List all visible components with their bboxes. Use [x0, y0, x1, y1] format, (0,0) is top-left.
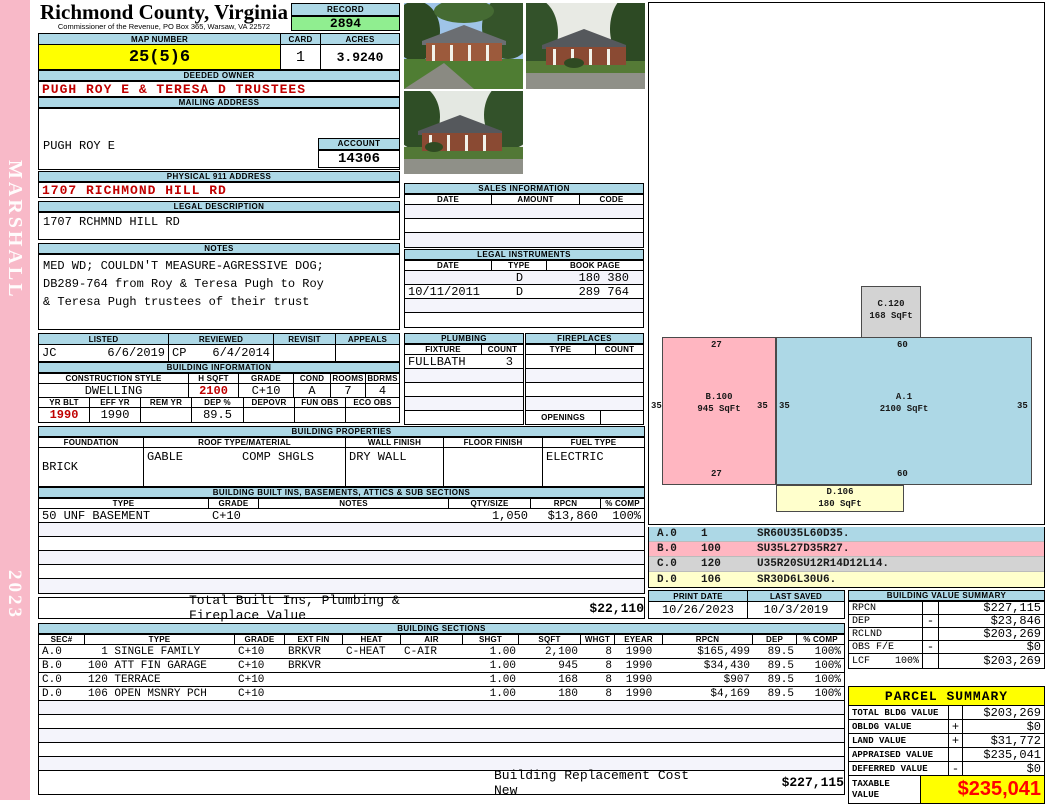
sec-dep: 89.5: [753, 645, 797, 658]
property-record-card: { "sidebar": { "vendor": "MARSHALL", "ye…: [0, 0, 1050, 800]
sec-eyear: 1990: [615, 687, 663, 700]
replacement-cost-row: Building Replacement Cost New $227,115: [39, 771, 844, 794]
legend-row-c: C.0 120 U35R20SU12R14D12L14.: [649, 557, 1044, 572]
sec-comp: 100%: [797, 645, 844, 658]
legal-description-value: 1707 RCHMND HILL RD: [38, 212, 400, 240]
depovr-header: DEPOVR: [244, 398, 295, 407]
building-information-label: BUILDING INFORMATION: [38, 362, 400, 373]
plumbing-label: PLUMBING: [404, 333, 524, 344]
sec-heat-header: HEAT: [343, 635, 401, 644]
builtin-notes-header: NOTES: [259, 499, 449, 508]
notes-line-2: DB289-764 from Roy & Teresa Pugh to Roy: [43, 275, 399, 293]
builtin-notes: [259, 509, 449, 522]
sec-grade: C+10: [235, 645, 285, 658]
empty-row: [405, 313, 643, 327]
account-label: ACCOUNT: [318, 138, 400, 150]
floor-finish-header: FLOOR FINISH: [444, 438, 543, 447]
sec-extfin-header: EXT FIN: [285, 635, 343, 644]
sec-whgt: 8: [581, 659, 615, 672]
openings-value: [601, 411, 643, 424]
foundation-value: BRICK: [39, 448, 144, 486]
yrblt-value: 1990: [39, 408, 90, 422]
builtin-type: 50 UNF BASEMENT: [39, 509, 209, 522]
sec-grade: C+10: [235, 673, 285, 686]
instrument-row: 10/11/2011 D 289 764: [405, 285, 643, 299]
taxable-value-label: TAXABLE VALUE: [849, 776, 921, 803]
account-value: 14306: [318, 150, 400, 168]
bvs-lcf-label: LCF: [852, 656, 870, 667]
sec-sqft-header: SQFT: [519, 635, 581, 644]
legend-b-vector: SU35L27D35R27.: [757, 543, 849, 555]
legend-d-qty: 106: [701, 574, 757, 586]
sketch-c-id: C.120: [856, 298, 926, 310]
building-section-row: C.0 120 TERRACE C+10 1.00 168 8 1990 $90…: [39, 673, 844, 687]
plumbing-table: FIXTURE COUNT FULLBATH 3: [404, 344, 524, 425]
building-sections-label: BUILDING SECTIONS: [38, 623, 845, 634]
property-photo-1[interactable]: [404, 3, 523, 89]
empty-row: [39, 757, 844, 771]
empty-row: [39, 565, 644, 579]
openings-label: OPENINGS: [526, 411, 601, 424]
revisit-header: REVISIT: [274, 334, 336, 344]
ecoobs-value: [346, 408, 399, 422]
bvs-rclnd-value: $203,269: [939, 628, 1044, 640]
bvs-rpcn-value: $227,115: [939, 602, 1044, 614]
sec-air-header: AIR: [401, 635, 463, 644]
sec-id: B.0: [39, 659, 85, 672]
fireplaces-table: TYPE COUNT OPENINGS: [525, 344, 644, 425]
empty-row: [39, 715, 844, 729]
legend-row-a: A.0 1 SR60U35L60D35.: [649, 527, 1044, 542]
building-section-row: B.0 100 ATT FIN GARAGE C+10 BRKVR 1.00 9…: [39, 659, 844, 673]
dim-a-bottom: 60: [897, 469, 908, 479]
building-sections-table: SEC# TYPE GRADE EXT FIN HEAT AIR SHGT SQ…: [38, 634, 845, 795]
bvs-lcf-value: $203,269: [939, 654, 1044, 668]
builtin-comp-header: % COMP: [601, 499, 644, 508]
sales-table: DATE AMOUNT CODE: [404, 194, 644, 248]
wall-finish-value: DRY WALL: [346, 448, 444, 486]
bvs-obs-sign: -: [923, 641, 939, 653]
instrument-date-header: DATE: [405, 261, 492, 270]
empty-row: [39, 729, 844, 743]
deferred-value: $0: [963, 762, 1044, 775]
appraised-value: $235,041: [963, 748, 1044, 761]
sec-whgt: 8: [581, 673, 615, 686]
bdrms-header: BDRMS: [366, 374, 399, 383]
dim-a-top: 60: [897, 340, 908, 350]
print-date-label: PRINT DATE: [649, 591, 748, 601]
remyr-value: [141, 408, 192, 422]
reviewed-header: REVIEWED: [169, 334, 274, 344]
sec-type: 106 OPEN MSNRY PCH: [85, 687, 235, 700]
acres-value: 3.9240: [321, 45, 399, 69]
card-value: 1: [281, 45, 321, 69]
map-number-value: 25(5)6: [39, 45, 281, 69]
bvs-obs-label: OBS F/E: [849, 641, 923, 653]
map-number-label: MAP NUMBER: [39, 34, 281, 44]
building-section-row: D.0 106 OPEN MSNRY PCH C+10 1.00 180 8 1…: [39, 687, 844, 701]
legend-c-vector: U35R20SU12R14D12L14.: [757, 558, 889, 570]
property-photo-2[interactable]: [526, 3, 645, 89]
bvs-rpcn-sign: [923, 602, 939, 614]
sec-rpcn: $907: [663, 673, 753, 686]
sec-extfin: BRKVR: [285, 659, 343, 672]
legend-d-vector: SR30D6L30U6.: [757, 574, 836, 586]
bvs-lcf-pct: 100%: [895, 656, 919, 667]
vendor-watermark: MARSHALL: [3, 160, 26, 300]
record-label: RECORD: [291, 3, 400, 16]
reviewed-date: 6/4/2014: [212, 346, 270, 360]
legal-description-label: LEGAL DESCRIPTION: [38, 201, 400, 212]
listed-date: 6/6/2019: [107, 346, 165, 360]
legend-row-d: D.0 106 SR30D6L30U6.: [649, 572, 1044, 587]
appraised-label: APPRAISED VALUE: [849, 748, 949, 761]
legal-instruments-label: LEGAL INSTRUMENTS: [404, 249, 644, 260]
land-value: $31,772: [963, 734, 1044, 747]
appeals-header: APPEALS: [336, 334, 399, 344]
record-value: 2894: [291, 16, 400, 31]
empty-row: [405, 369, 523, 383]
print-saved-table: PRINT DATE LAST SAVED 10/26/2023 10/3/20…: [648, 590, 845, 619]
yrblt-header: YR BLT: [39, 398, 90, 407]
total-bldg-label: TOTAL BLDG VALUE: [849, 706, 949, 719]
fixture-value: FULLBATH: [405, 355, 482, 368]
sec-heat: [343, 659, 401, 672]
built-ins-total-label: Total Built Ins, Plumbing & Fireplace Va…: [189, 593, 419, 623]
instrument-row: D 180 380: [405, 271, 643, 285]
notes-line-1: MED WD; COULDN'T MEASURE-AGRESSIVE DOG;: [43, 257, 399, 275]
building-properties-table: FOUNDATION ROOF TYPE/MATERIAL WALL FINIS…: [38, 437, 645, 487]
obldg-value: $0: [963, 720, 1044, 733]
sec-id: D.0: [39, 687, 85, 700]
depovr-value: [244, 408, 295, 422]
parcel-summary-title: PARCEL SUMMARY: [849, 687, 1044, 706]
sidebar-band: MARSHALL 2023: [0, 0, 30, 800]
replacement-cost-label: Building Replacement Cost New: [494, 768, 717, 798]
instrument-bookpage-header: BOOK PAGE: [547, 261, 643, 270]
builtin-comp: 100%: [601, 509, 644, 522]
sec-dep-header: DEP: [753, 635, 797, 644]
dim-b-right: 35: [757, 401, 768, 411]
review-table: LISTED REVIEWED REVISIT APPEALS JC6/6/20…: [38, 333, 400, 362]
rooms-header: ROOMS: [331, 374, 366, 383]
bvs-rclnd-label: RCLND: [849, 628, 923, 640]
deppct-header: DEP %: [192, 398, 244, 407]
sec-type-header: TYPE: [85, 635, 235, 644]
sec-id: A.0: [39, 645, 85, 658]
sec-air: [401, 659, 463, 672]
empty-row: [526, 383, 643, 397]
listed-header: LISTED: [39, 334, 169, 344]
sec-air: C-AIR: [401, 645, 463, 658]
obldg-sign: +: [949, 720, 963, 733]
sec-dep: 89.5: [753, 687, 797, 700]
dim-b-left: 35: [651, 401, 662, 411]
legend-c-qty: 120: [701, 558, 757, 570]
building-information-table: CONSTRUCTION STYLE H SQFT GRADE COND ROO…: [38, 373, 400, 423]
built-ins-total-row: Total Built Ins, Plumbing & Fireplace Va…: [38, 597, 645, 619]
construction-style-value: DWELLING: [39, 384, 189, 397]
bvs-obs-value: $0: [939, 641, 1044, 653]
physical-address-label: PHYSICAL 911 ADDRESS: [38, 171, 400, 182]
ecoobs-header: ECO OBS: [346, 398, 399, 407]
land-label: LAND VALUE: [849, 734, 949, 747]
floor-finish-value: [444, 448, 543, 486]
sketch-a-id: A.1: [776, 391, 1032, 403]
funobs-value: [295, 408, 346, 422]
appraised-sign: [949, 748, 963, 761]
sec-sqft: 180: [519, 687, 581, 700]
deppct-value: 89.5: [192, 408, 244, 422]
effyr-value: 1990: [90, 408, 141, 422]
sec-extfin: BRKVR: [285, 645, 343, 658]
fireplace-type-header: TYPE: [526, 345, 596, 354]
sec-rpcn-header: RPCN: [663, 635, 753, 644]
wall-finish-header: WALL FINISH: [346, 438, 444, 447]
sec-header: SEC#: [39, 635, 85, 644]
legend-c-code: C.0: [649, 558, 701, 570]
empty-row: [39, 537, 644, 551]
funobs-header: FUN OBS: [295, 398, 346, 407]
bvs-dep-value: $23,846: [939, 615, 1044, 627]
sec-shgt: 1.00: [463, 687, 519, 700]
building-section-row: A.0 1 SINGLE FAMILY C+10 BRKVR C-HEAT C-…: [39, 645, 844, 659]
bvs-dep-sign: -: [923, 615, 939, 627]
instrument-type: D: [492, 271, 547, 284]
dim-a-left: 35: [779, 401, 790, 411]
sec-grade-header: GRADE: [235, 635, 285, 644]
builtin-rpcn-header: RPCN: [531, 499, 601, 508]
builtin-grade: C+10: [209, 509, 259, 522]
legend-d-code: D.0: [649, 574, 701, 586]
fireplaces-label: FIREPLACES: [525, 333, 644, 344]
legal-instruments-table: DATE TYPE BOOK PAGE D 180 380 10/11/2011…: [404, 260, 644, 328]
land-sign: +: [949, 734, 963, 747]
sec-air: [401, 687, 463, 700]
card-label: CARD: [281, 34, 321, 44]
sec-air: [401, 673, 463, 686]
fixture-header: FIXTURE: [405, 345, 482, 354]
legend-a-vector: SR60U35L60D35.: [757, 528, 849, 540]
sec-shgt: 1.00: [463, 659, 519, 672]
legend-b-qty: 100: [701, 543, 757, 555]
sketch-a-sqft: 2100 SqFt: [776, 403, 1032, 415]
instrument-date: [405, 271, 492, 284]
rooms-value: 7: [331, 384, 366, 397]
sales-date-header: DATE: [405, 195, 492, 204]
cond-header: COND: [294, 374, 331, 383]
instrument-type: D: [492, 285, 547, 298]
built-ins-table: TYPE GRADE NOTES QTY/SIZE RPCN % COMP 50…: [38, 498, 645, 594]
hsqft-header: H SQFT: [189, 374, 239, 383]
bvs-rpcn-label: RPCN: [849, 602, 923, 614]
instrument-bookpage: 180 380: [547, 271, 643, 284]
instrument-bookpage: 289 764: [547, 285, 643, 298]
empty-row: [526, 397, 643, 411]
fuel-type-header: FUEL TYPE: [543, 438, 644, 447]
obldg-label: OBLDG VALUE: [849, 720, 949, 733]
dim-b-top: 27: [711, 340, 722, 350]
taxable-value-amount: $235,041: [921, 776, 1044, 803]
map-card-acres-table: MAP NUMBER CARD ACRES 25(5)6 1 3.9240: [38, 33, 400, 70]
deferred-sign: -: [949, 762, 963, 775]
sec-type: 120 TERRACE: [85, 673, 235, 686]
legend-b-code: B.0: [649, 543, 701, 555]
empty-row: [405, 219, 643, 233]
sec-dep: 89.5: [753, 659, 797, 672]
sales-information-label: SALES INFORMATION: [404, 183, 644, 194]
builtin-qty-header: QTY/SIZE: [449, 499, 531, 508]
sketch-canvas: C.120 168 SqFt D.106 180 SqFt B.100 945 …: [648, 2, 1045, 525]
sec-rpcn: $34,430: [663, 659, 753, 672]
notes-block: MED WD; COULDN'T MEASURE-AGRESSIVE DOG; …: [38, 254, 400, 330]
grade-value: C+10: [239, 384, 294, 397]
legend-a-qty: 1: [701, 528, 757, 540]
sec-eyear: 1990: [615, 645, 663, 658]
built-ins-row: 50 UNF BASEMENT C+10 1,050 $13,860 100%: [39, 509, 644, 523]
sec-id: C.0: [39, 673, 85, 686]
sec-eyear-header: EYEAR: [615, 635, 663, 644]
sec-sqft: 2,100: [519, 645, 581, 658]
built-ins-label: BUILDING BUILT INS, BASEMENTS, ATTICS & …: [38, 487, 645, 498]
effyr-header: EFF YR: [90, 398, 141, 407]
construction-style-header: CONSTRUCTION STYLE: [39, 374, 189, 383]
roof-header: ROOF TYPE/MATERIAL: [144, 438, 346, 447]
last-saved-value: 10/3/2019: [748, 602, 844, 618]
grade-header: GRADE: [239, 374, 294, 383]
sketch-legend: A.0 1 SR60U35L60D35. B.0 100 SU35L27D35R…: [648, 527, 1045, 588]
empty-row: [526, 355, 643, 369]
notes-line-3: & Teresa Pugh trustees of their trust: [43, 293, 399, 311]
sketch-d-id: D.106: [776, 486, 904, 498]
instrument-date: 10/11/2011: [405, 285, 492, 298]
deeded-owner-label: DEEDED OWNER: [38, 70, 400, 81]
mailing-address-label: MAILING ADDRESS: [38, 97, 400, 108]
sec-heat: C-HEAT: [343, 645, 401, 658]
bvs-lcf-sign: [923, 654, 939, 668]
total-bldg-value: $203,269: [963, 706, 1044, 719]
fuel-type-value: ELECTRIC: [543, 448, 644, 486]
revisit-value: [274, 345, 336, 361]
empty-row: [39, 743, 844, 757]
sec-extfin: [285, 687, 343, 700]
last-saved-label: LAST SAVED: [748, 591, 844, 601]
sec-rpcn: $165,499: [663, 645, 753, 658]
empty-row: [39, 523, 644, 537]
sec-sqft: 168: [519, 673, 581, 686]
sketch-c-sqft: 168 SqFt: [856, 310, 926, 322]
sec-whgt: 8: [581, 645, 615, 658]
sec-comp: 100%: [797, 673, 844, 686]
fixture-count-header: COUNT: [482, 345, 523, 354]
sketch-d-sqft: 180 SqFt: [776, 498, 904, 510]
sec-eyear: 1990: [615, 673, 663, 686]
sec-type: 100 ATT FIN GARAGE: [85, 659, 235, 672]
empty-row: [526, 369, 643, 383]
bdrms-value: 4: [366, 384, 399, 397]
building-properties-label: BUILDING PROPERTIES: [38, 426, 645, 437]
sec-comp-header: % COMP: [797, 635, 844, 644]
empty-row: [39, 701, 844, 715]
appeals-value: [336, 345, 399, 361]
remyr-header: REM YR: [141, 398, 192, 407]
building-value-summary-table: RPCN $227,115 DEP - $23,846 RCLND $203,2…: [848, 601, 1045, 669]
legend-a-code: A.0: [649, 528, 701, 540]
sec-eyear: 1990: [615, 659, 663, 672]
plumbing-row: FULLBATH 3: [405, 355, 523, 369]
sec-comp: 100%: [797, 659, 844, 672]
deeded-owner-value: PUGH ROY E & TERESA D TRUSTEES: [38, 81, 400, 97]
cond-value: A: [294, 384, 331, 397]
bvs-rclnd-sign: [923, 628, 939, 640]
sec-whgt-header: WHGT: [581, 635, 615, 644]
listed-by: JC: [42, 346, 56, 360]
physical-address-value: 1707 RICHMOND HILL RD: [38, 182, 400, 198]
empty-row: [405, 233, 643, 247]
sales-amount-header: AMOUNT: [492, 195, 580, 204]
empty-row: [39, 551, 644, 565]
dim-b-bottom: 27: [711, 469, 722, 479]
sec-grade: C+10: [235, 659, 285, 672]
sec-heat: [343, 687, 401, 700]
empty-row: [405, 299, 643, 313]
property-photo-3[interactable]: [404, 91, 523, 174]
roof-material-value: COMP SHGLS: [242, 450, 314, 464]
total-bldg-sign: [949, 706, 963, 719]
deferred-label: DEFERRED VALUE: [849, 762, 949, 775]
dim-a-right: 35: [1017, 401, 1028, 411]
sec-heat: [343, 673, 401, 686]
fireplace-count-header: COUNT: [596, 345, 643, 354]
builtin-rpcn: $13,860: [531, 509, 601, 522]
empty-row: [405, 205, 643, 219]
fixture-count-value: 3: [482, 355, 523, 368]
sec-shgt: 1.00: [463, 673, 519, 686]
builtin-grade-header: GRADE: [209, 499, 259, 508]
sales-code-header: CODE: [580, 195, 643, 204]
parcel-summary-panel: PARCEL SUMMARY TOTAL BLDG VALUE $203,269…: [848, 686, 1045, 804]
built-ins-total-value: $22,110: [589, 601, 644, 616]
sec-rpcn: $4,169: [663, 687, 753, 700]
bvs-dep-label: DEP: [849, 615, 923, 627]
sec-shgt-header: SHGT: [463, 635, 519, 644]
sec-whgt: 8: [581, 687, 615, 700]
empty-row: [39, 579, 644, 593]
instrument-type-header: TYPE: [492, 261, 547, 270]
sec-extfin: [285, 673, 343, 686]
empty-row: [405, 383, 523, 397]
acres-label: ACRES: [321, 34, 399, 44]
county-subtitle: Commissioner of the Revenue, PO Box 365,…: [38, 22, 290, 31]
sec-shgt: 1.00: [463, 645, 519, 658]
sec-sqft: 945: [519, 659, 581, 672]
empty-row: [405, 411, 523, 424]
building-value-summary-label: BUILDING VALUE SUMMARY: [848, 590, 1045, 601]
foundation-header: FOUNDATION: [39, 438, 144, 447]
hsqft-value: 2100: [189, 384, 239, 397]
roof-type-value: GABLE: [147, 450, 242, 464]
builtin-type-header: TYPE: [39, 499, 209, 508]
sec-type: 1 SINGLE FAMILY: [85, 645, 235, 658]
sec-grade: C+10: [235, 687, 285, 700]
reviewed-by: CP: [172, 346, 186, 360]
tax-year-watermark: 2023: [3, 570, 25, 620]
sec-comp: 100%: [797, 687, 844, 700]
legend-row-b: B.0 100 SU35L27D35R27.: [649, 542, 1044, 557]
sec-dep: 89.5: [753, 673, 797, 686]
print-date-value: 10/26/2023: [649, 602, 748, 618]
empty-row: [405, 397, 523, 411]
